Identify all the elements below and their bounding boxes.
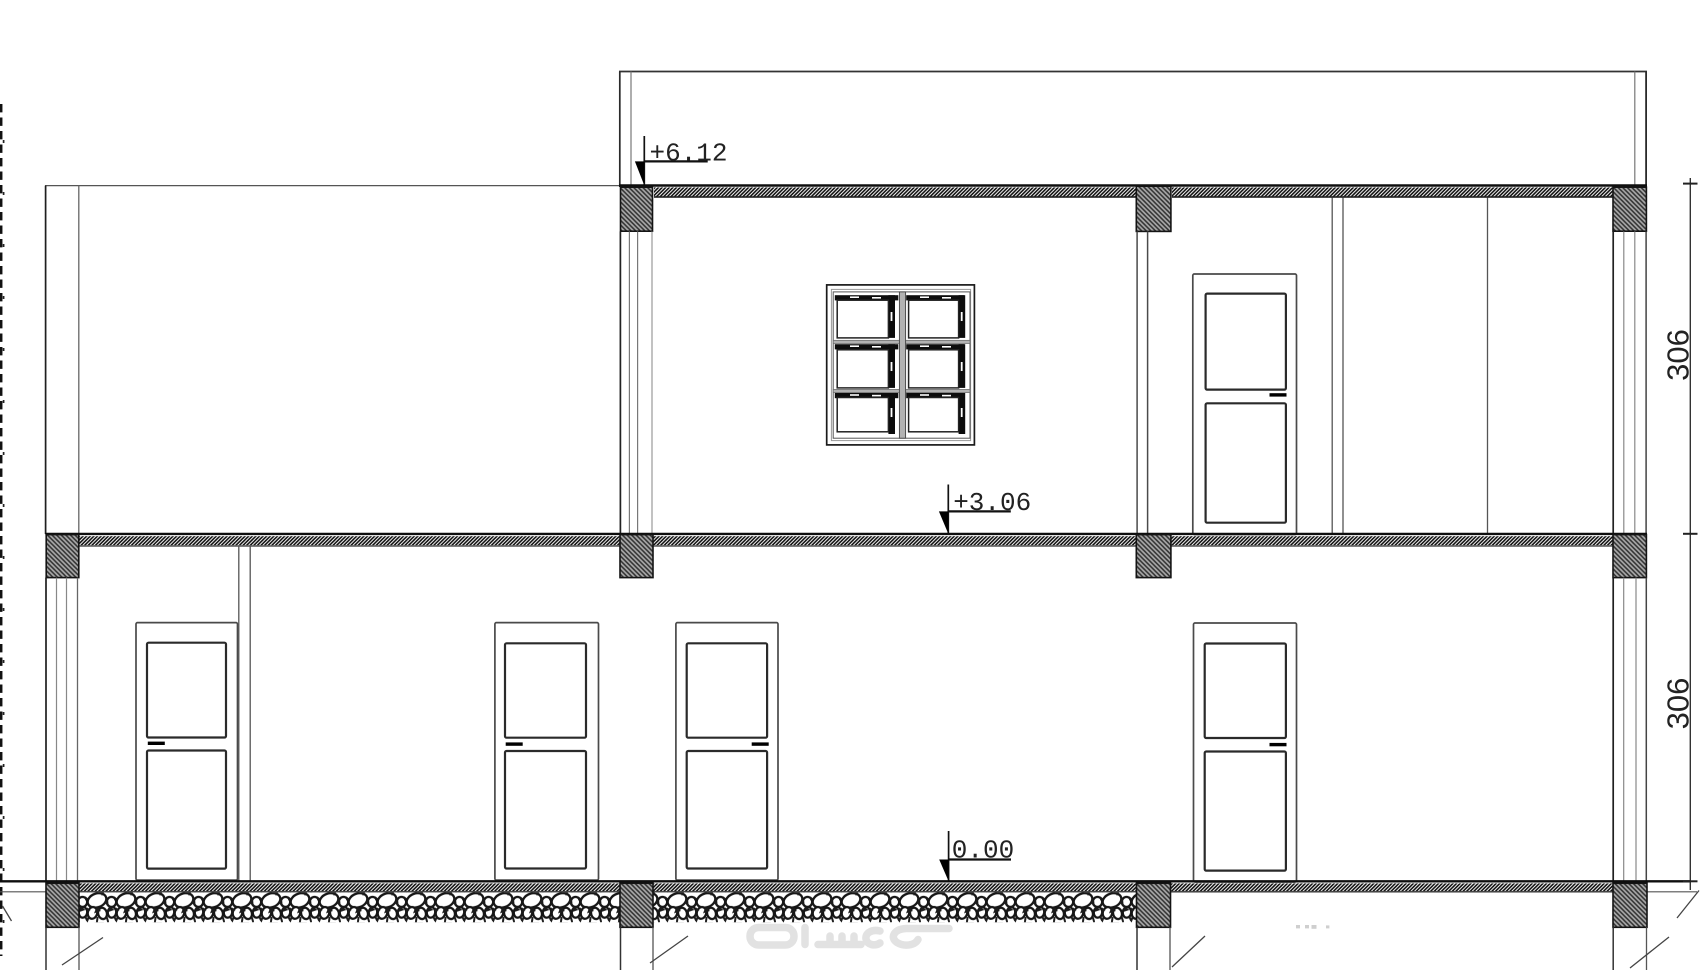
svg-text:+6.12: +6.12 xyxy=(650,139,728,169)
svg-text:306: 306 xyxy=(1661,329,1696,381)
svg-text:+3.06: +3.06 xyxy=(953,488,1031,518)
svg-text:306: 306 xyxy=(1661,678,1696,730)
svg-text:0.00: 0.00 xyxy=(952,836,1014,866)
